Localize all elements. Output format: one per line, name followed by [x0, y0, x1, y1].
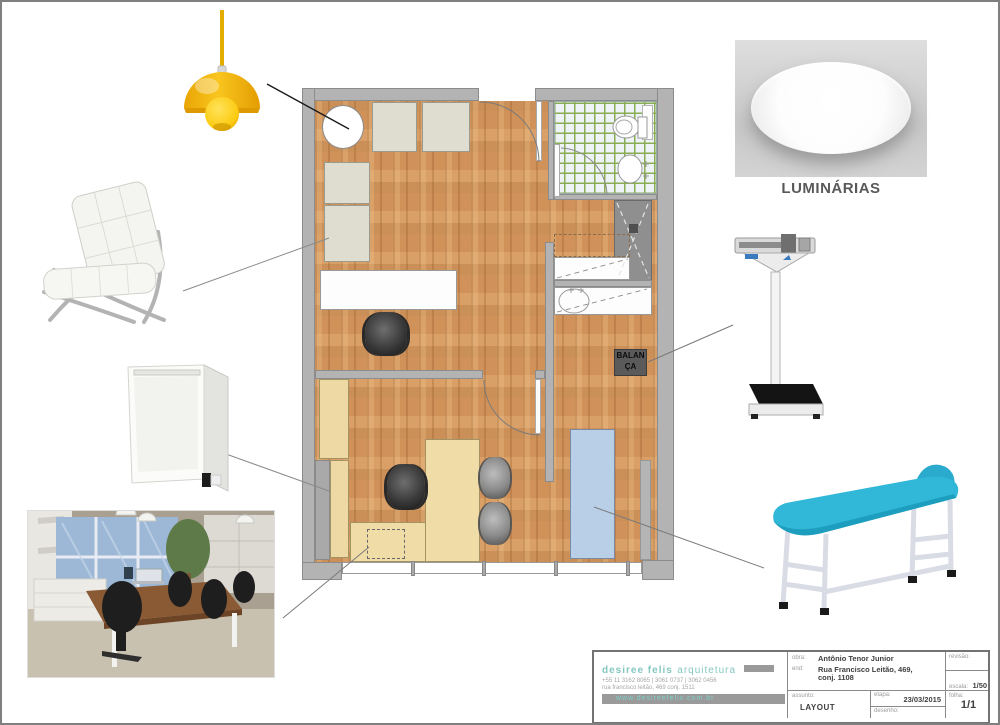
round-table: [322, 105, 364, 149]
wall-bottom-left-stub: [302, 562, 342, 580]
logo-website: www.desireefelix.com.br: [602, 694, 785, 704]
interior-wall-right: [535, 370, 545, 379]
desenho-label: desenho:: [874, 708, 945, 714]
escala-cell: escala: 1/50: [946, 671, 988, 691]
escala-value: 1/50: [972, 681, 987, 690]
interior-wall-left: [315, 370, 483, 379]
cpu-dashed-box: [367, 529, 405, 559]
waiting-chair-1: [324, 162, 370, 204]
barcelona-chair-image: [22, 174, 197, 329]
end-label: end:: [792, 666, 814, 683]
end-value-line2: conj. 1108: [818, 673, 854, 682]
doctor-desk-vertical: [425, 439, 480, 562]
end-value: Rua Francisco Leitão, 469, conj. 1108: [818, 666, 913, 683]
kitchen-counter-sink: [554, 287, 652, 315]
interior-door-leaf: [535, 379, 541, 434]
wall-top-left: [302, 88, 479, 101]
side-cabinet-upper: [319, 379, 349, 459]
revisao-label: revisão:: [949, 654, 988, 660]
kitchen-counter-upper: [554, 257, 630, 280]
wall-bottom-right-stub: [642, 560, 674, 580]
title-block: desiree felis arquitetura +55 11 3162 80…: [592, 650, 990, 724]
armchair-1: [372, 102, 417, 152]
balanca-line1: BALAN: [617, 351, 645, 360]
etapa-cell: etapa: 23/03/2015: [871, 691, 946, 707]
desenho-cell: desenho:: [871, 707, 946, 718]
reception-counter: [320, 270, 457, 310]
floor-plan: BALAN ÇA: [302, 88, 674, 580]
balanca-label: BALAN ÇA: [615, 350, 646, 375]
balanca-line2: ÇA: [625, 362, 637, 371]
side-cabinet-lower: [330, 460, 349, 558]
office-render-image: [27, 510, 275, 678]
window-mullion: [554, 561, 558, 576]
folha-cell: folha: 1/1: [946, 691, 988, 718]
doctor-chair: [387, 464, 425, 510]
visitor-chair-1: [480, 457, 510, 499]
logo-brand-bold: desiree felis: [602, 665, 673, 676]
wall-left: [302, 88, 315, 580]
ceiling-light-diffuser: [751, 62, 911, 154]
right-shelf-strip: [640, 460, 651, 560]
bathroom-door-leaf: [554, 144, 560, 197]
escala-label: escala:: [949, 684, 968, 690]
window-mullion: [482, 561, 486, 576]
visitor-chair-2: [480, 502, 510, 545]
wall-top-right: [535, 88, 674, 101]
waiting-chair-2: [324, 205, 370, 262]
exam-table-image: [764, 460, 972, 620]
obra-end-cell: obra: Antônio Tenor Junior end: Rua Fran…: [788, 652, 946, 691]
ceiling-light-image: [735, 40, 927, 177]
wall-right: [657, 88, 674, 580]
corridor-wall: [545, 242, 554, 482]
luminarias-label: LUMINÁRIAS: [735, 180, 927, 197]
side-cabinet-gray: [315, 460, 330, 560]
window-mullion: [411, 561, 415, 576]
layout-presentation-sheet: BALAN ÇA: [0, 0, 1000, 725]
kitchen-wall-stub: [554, 280, 652, 287]
folha-value: 1/1: [949, 701, 988, 710]
assunto-value: LAYOUT: [800, 704, 870, 713]
reception-chair: [365, 312, 407, 356]
assunto-label: assunto:: [792, 693, 870, 699]
logo-phone: +55 11 3162 8065 | 3061 0737 | 3062 0456: [602, 678, 787, 685]
logo-bar: [744, 665, 774, 672]
assunto-cell: assunto: LAYOUT: [788, 691, 871, 718]
shower-partition: [642, 105, 653, 140]
exam-couch-plan: [570, 429, 615, 559]
revisao-cell: revisão:: [946, 652, 988, 671]
pendant-lamp-image: [172, 10, 272, 142]
obra-label: obra:: [792, 655, 814, 664]
title-block-logo-cell: desiree felis arquitetura +55 11 3162 80…: [594, 652, 788, 718]
xray-viewer-image: [112, 357, 247, 497]
obra-value: Antônio Tenor Junior: [818, 655, 894, 664]
logo-brand-regular: arquitetura: [677, 665, 736, 676]
overhead-cabinet-dashed: [554, 234, 630, 257]
window-strip: [342, 562, 642, 574]
physician-scale-image: [727, 222, 825, 420]
entrance-door-leaf: [536, 101, 542, 161]
armchair-2: [422, 102, 470, 152]
logo-address: rua francisco leitão, 469 conj. 1511: [602, 685, 787, 692]
window-mullion: [626, 561, 630, 576]
